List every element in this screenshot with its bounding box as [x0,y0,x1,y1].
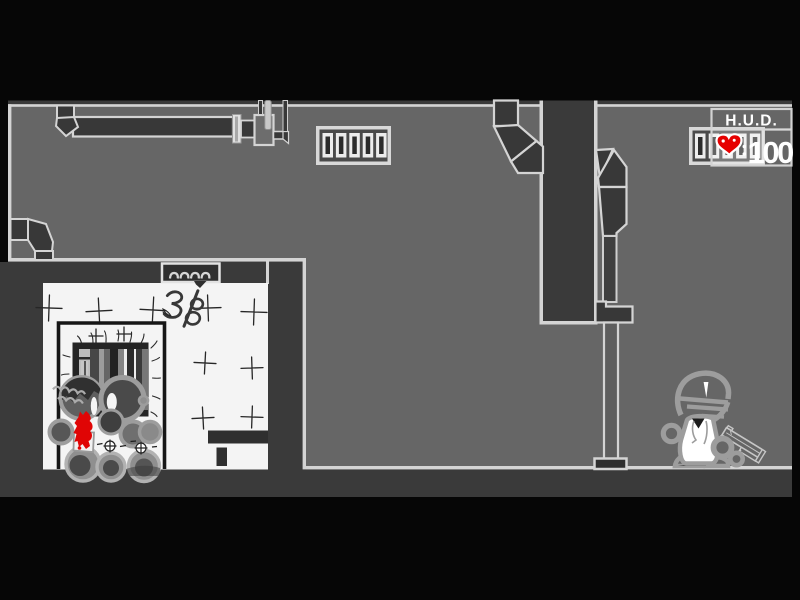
svg-text:H.U.D.: H.U.D. [725,113,778,130]
svg-text:100: 100 [748,135,793,170]
